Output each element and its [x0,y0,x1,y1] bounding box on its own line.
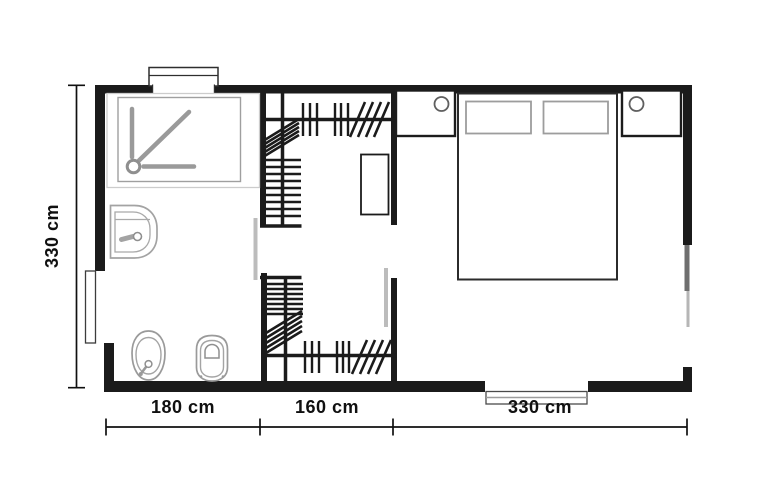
nightstand-left [396,91,455,137]
wardrobe-lower [260,278,397,382]
balcony-door-leaf-light [687,291,690,327]
pillow-right [544,102,609,134]
wall-right-lower-stub [683,367,692,392]
entry-door-leaf [86,271,96,343]
partition-bedroom-lower [391,278,397,381]
closet-sliding-doors [254,218,389,327]
dimension-label-closet-width: 160 cm [282,396,372,418]
dimension-label-bedroom-width: 330 cm [495,396,585,418]
top-window [149,68,218,95]
double-bed [458,94,617,280]
dimension-label-height: 330 cm [41,196,63,276]
floorplan-drawing [0,0,759,500]
toilet-seat-icon [205,345,219,359]
wall-right-upper [683,85,692,245]
dresser [361,155,389,215]
balcony-door [685,245,690,327]
sliding-door-bedroom [384,268,388,327]
nightstand-right [622,91,681,137]
shower-drain-icon [127,160,140,173]
toilet [197,336,228,382]
sliding-door-bathroom [254,218,258,280]
balcony-door-leaf-dark [685,245,690,291]
wall-left-upper [95,85,105,271]
shower [107,94,260,188]
bidet [132,331,165,380]
lamp-icon-left [435,97,449,111]
washbasin [111,206,158,259]
floorplan-canvas: 330 cm 180 cm 160 cm 330 cm [0,0,759,500]
shelf-ticks-lower [266,284,303,314]
wall-bottom-left-segment [104,381,485,392]
shower-arm [132,109,194,167]
entry-door [86,271,96,343]
dimension-label-bathroom-width: 180 cm [138,396,228,418]
pillow-left [466,102,531,134]
wall-bottom-right-segment [588,381,692,392]
lamp-icon-right [630,97,644,111]
